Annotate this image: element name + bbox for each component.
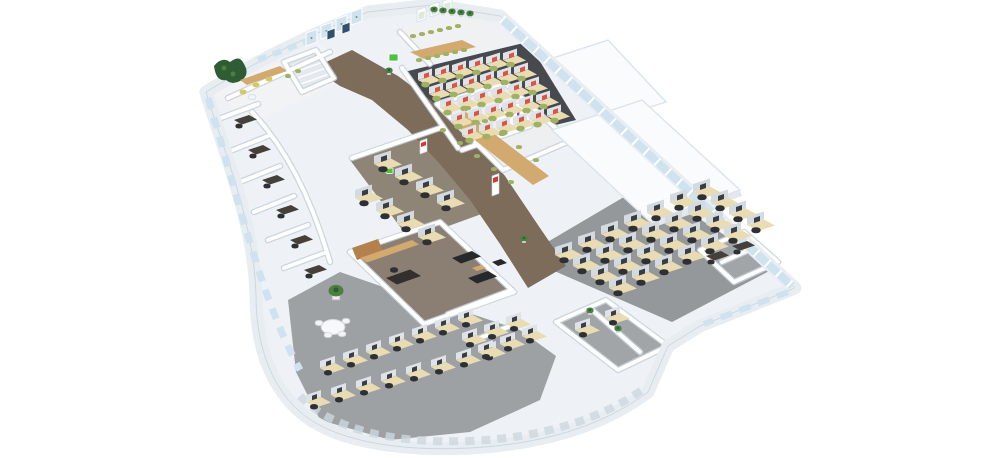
breakout-chair [324,332,332,337]
exit-sign [389,54,398,61]
floorplan-svg [0,0,1000,458]
meeting-chair [482,119,488,123]
meeting-chair [499,132,505,136]
red-wall-sign [420,139,427,155]
meeting-chair [474,154,480,158]
breakout-chair [315,320,323,325]
meeting-chair [440,128,446,132]
guest-chair [295,69,301,73]
guest-chair [253,83,260,88]
breakout-chair [338,331,346,336]
floorplan-render [0,0,1000,458]
guest-chair [285,74,291,78]
lounge-table [248,94,256,99]
training-chair [452,50,458,54]
training-chair [437,28,443,32]
meeting-chair [508,180,514,184]
meeting-chair [516,145,522,149]
training-chair [425,56,431,60]
breakout-chair [342,318,350,323]
training-chair [455,24,461,28]
training-chair [461,48,467,52]
guest-chair [240,90,247,95]
training-chair [416,58,422,62]
training-chair [434,54,440,58]
red-wall-sign [492,174,499,197]
training-chair [410,34,416,38]
meeting-chair [457,141,463,145]
guest-chair [266,77,273,82]
meeting-chair [465,106,471,110]
exec-chair [390,267,398,273]
training-chair [443,52,449,56]
training-poster [417,7,426,22]
training-chair [446,26,452,30]
training-chair [419,32,425,36]
meeting-chair [533,158,539,162]
training-chair [428,30,434,34]
meeting-chair [491,167,497,171]
